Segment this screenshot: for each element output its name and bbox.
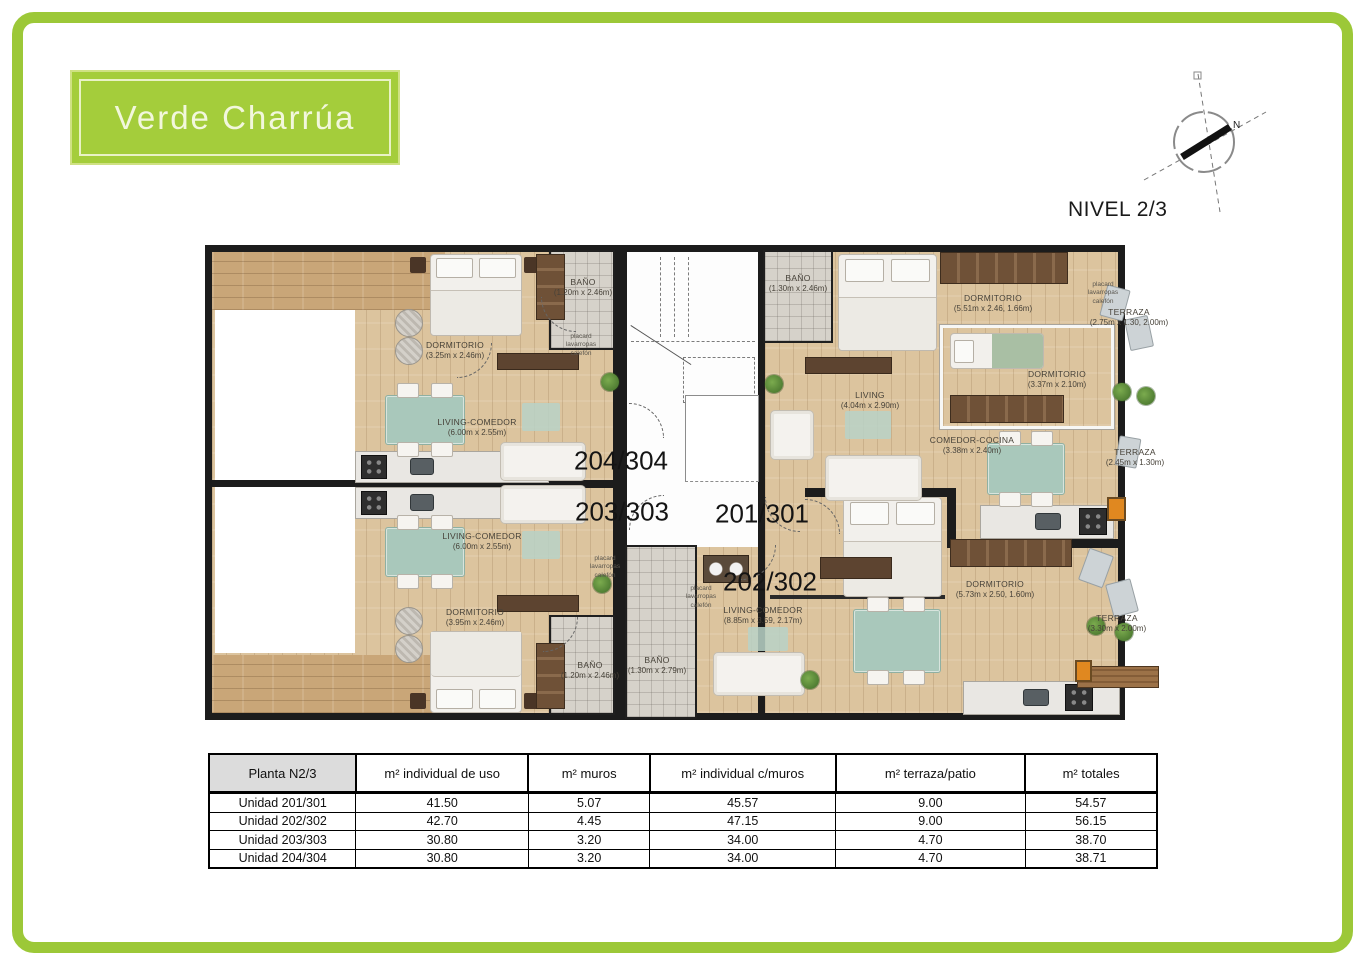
compass-north-label: N [1233, 120, 1240, 131]
table-row: Unidad 201/30141.505.0745.579.0054.57 [209, 793, 1157, 813]
pouf [395, 337, 423, 365]
wardrobe-202 [950, 539, 1072, 567]
area-value-cell: 9.00 [836, 812, 1026, 831]
unit-label-204-304: 204/304 [574, 446, 668, 477]
bed-202 [843, 497, 942, 597]
bathroom-202 [627, 547, 695, 717]
logo: Verde Charrúa [72, 72, 398, 163]
area-value-cell: 47.15 [650, 812, 836, 831]
area-value-cell: 3.20 [528, 831, 649, 850]
room-label: DORMITORIO(5.51m x 2.46, 1.66m) [954, 293, 1032, 314]
closet-note: placard lavarropas calefón [683, 585, 719, 610]
area-value-cell: 30.80 [356, 849, 529, 868]
sink-icon [1035, 513, 1061, 530]
room-label: BAÑO(1.20m x 2.46m) [561, 660, 619, 681]
room-label: TERRAZA(3.30m x 2.00m) [1088, 613, 1146, 634]
sink-icon [410, 494, 434, 511]
chair [397, 515, 419, 530]
room-label: BAÑO(1.30m x 2.46m) [769, 273, 827, 294]
plant [1137, 387, 1155, 405]
pouf [395, 607, 423, 635]
area-value-cell: 4.70 [836, 849, 1026, 868]
area-value-cell: 45.57 [650, 793, 836, 813]
chair [397, 442, 419, 457]
tv-unit-201 [805, 357, 892, 374]
area-value-cell: 56.15 [1025, 812, 1157, 831]
stair-dash-2 [674, 257, 675, 337]
nightstand [410, 257, 426, 273]
chair [903, 597, 925, 612]
area-value-cell: 3.20 [528, 849, 649, 868]
room-label: DORMITORIO(3.37m x 2.10m) [1028, 369, 1086, 390]
void-lower [215, 487, 355, 653]
chair [903, 670, 925, 685]
sofa-201 [825, 455, 922, 501]
sofa-203 [500, 485, 586, 524]
room-label: DORMITORIO(5.73m x 2.50, 1.60m) [956, 579, 1034, 600]
area-value-cell: 4.45 [528, 812, 649, 831]
table-row: Unidad 202/30242.704.4547.159.0056.15 [209, 812, 1157, 831]
area-table-body: Unidad 201/30141.505.0745.579.0054.57Uni… [209, 793, 1157, 869]
plant [801, 671, 819, 689]
sofa-202 [713, 652, 805, 696]
area-value-cell: 5.07 [528, 793, 649, 813]
table-row: Unidad 204/30430.803.2034.004.7038.71 [209, 849, 1157, 868]
pouf [395, 635, 423, 663]
wardrobe-201 [940, 252, 1068, 284]
column-header: m² totales [1025, 754, 1157, 793]
room-label: LIVING-COMEDOR(6.00m x 2.55m) [437, 417, 516, 438]
column-header: m² individual de uso [356, 754, 529, 793]
coffee-table-202 [820, 557, 892, 579]
area-table: Planta N2/3 m² individual de uso m² muro… [208, 753, 1158, 869]
bathroom-201 [765, 252, 831, 341]
area-value-cell: 9.00 [836, 793, 1026, 813]
floor-plan: DORMITORIO(3.25m x 2.46m) LIVING-COMEDOR… [205, 245, 1168, 722]
closet-note: placard lavarropas calefón [587, 555, 623, 580]
unit-name-cell: Unidad 202/302 [209, 812, 356, 831]
closet-note: placard lavarropas calefón [1085, 281, 1121, 306]
table-header-row: Planta N2/3 m² individual de uso m² muro… [209, 754, 1157, 793]
plant [601, 373, 619, 391]
stove-icon [1079, 508, 1107, 535]
room-label: LIVING-COMEDOR(8.85m x 3.59, 2.17m) [723, 605, 802, 626]
unit-name-cell: Unidad 204/304 [209, 849, 356, 868]
area-value-cell: 38.71 [1025, 849, 1157, 868]
room-label: LIVING(4.04m x 2.90m) [841, 390, 899, 411]
plant [765, 375, 783, 393]
page: Verde Charrúa N NIVEL 2/3 [0, 0, 1365, 965]
level-label: NIVEL 2/3 [1068, 198, 1167, 222]
room-label: TERRAZA(2.75m x 1.30, 2.00m) [1090, 307, 1168, 328]
tv-unit-203 [497, 595, 579, 612]
chair [431, 515, 453, 530]
chair [431, 574, 453, 589]
area-value-cell: 54.57 [1025, 793, 1157, 813]
sink-icon [410, 458, 434, 475]
chair [867, 670, 889, 685]
unit-name-cell: Unidad 201/301 [209, 793, 356, 813]
sink-icon [1023, 689, 1049, 706]
chair [867, 597, 889, 612]
area-value-cell: 38.70 [1025, 831, 1157, 850]
column-header: m² individual c/muros [650, 754, 836, 793]
void-upper [215, 310, 355, 480]
closet-note: placard lavarropas calefón [563, 333, 599, 358]
rug-204 [522, 403, 560, 431]
room-label: TERRAZA(2.45m x 1.30m) [1106, 447, 1164, 468]
rug-201 [845, 411, 891, 439]
chair [431, 442, 453, 457]
sofa-201-small [770, 410, 814, 460]
logo-inner-border: Verde Charrúa [79, 79, 391, 156]
elevator-shaft [685, 395, 759, 482]
area-value-cell: 34.00 [650, 831, 836, 850]
column-header: m² muros [528, 754, 649, 793]
unit-label-201-301: 201/301 [715, 499, 809, 530]
stair-dash-1 [660, 257, 661, 337]
area-value-cell: 34.00 [650, 849, 836, 868]
chair [1031, 492, 1053, 507]
area-value-cell: 41.50 [356, 793, 529, 813]
chair [1031, 431, 1053, 446]
unit-label-203-303: 203/303 [575, 497, 669, 528]
room-label: DORMITORIO(3.95m x 2.46m) [446, 607, 504, 628]
wardrobe-201-inner [950, 395, 1064, 423]
grill-icon [1075, 660, 1092, 682]
table-row: Unidad 203/30330.803.2034.004.7038.70 [209, 831, 1157, 850]
plant [1113, 383, 1131, 401]
room-label: DORMITORIO(3.25m x 2.46m) [426, 340, 484, 361]
column-header: m² terraza/patio [836, 754, 1026, 793]
stove-icon [361, 455, 387, 479]
area-value-cell: 30.80 [356, 831, 529, 850]
unit-name-cell: Unidad 203/303 [209, 831, 356, 850]
chair [397, 574, 419, 589]
area-value-cell: 4.70 [836, 831, 1026, 850]
dining-table-202 [853, 609, 941, 673]
pouf [395, 309, 423, 337]
chair [431, 383, 453, 398]
room-label: BAÑO(1.20m x 2.46m) [554, 277, 612, 298]
bed-203 [430, 631, 522, 713]
chair [999, 492, 1021, 507]
column-header: Planta N2/3 [209, 754, 356, 793]
stair-dash-3 [688, 257, 689, 337]
stove-icon [361, 491, 387, 515]
bed-201 [838, 254, 937, 351]
unit-label-202-302: 202/302 [723, 567, 817, 598]
chair [397, 383, 419, 398]
bed-204 [430, 254, 522, 336]
rug-203 [522, 531, 560, 559]
room-label: COMEDOR-COCINA(3.38m x 2.40m) [930, 435, 1014, 456]
grill-icon [1107, 497, 1126, 521]
stove-icon [1065, 684, 1093, 711]
room-label: BAÑO(1.30m x 2.79m) [628, 655, 686, 676]
nightstand [410, 693, 426, 709]
rug-202 [748, 627, 788, 651]
logo-text: Verde Charrúa [115, 99, 356, 137]
room-label: LIVING-COMEDOR(6.00m x 2.55m) [442, 531, 521, 552]
bed-201-single [950, 333, 1044, 369]
stair-dash-4 [631, 341, 755, 342]
area-value-cell: 42.70 [356, 812, 529, 831]
